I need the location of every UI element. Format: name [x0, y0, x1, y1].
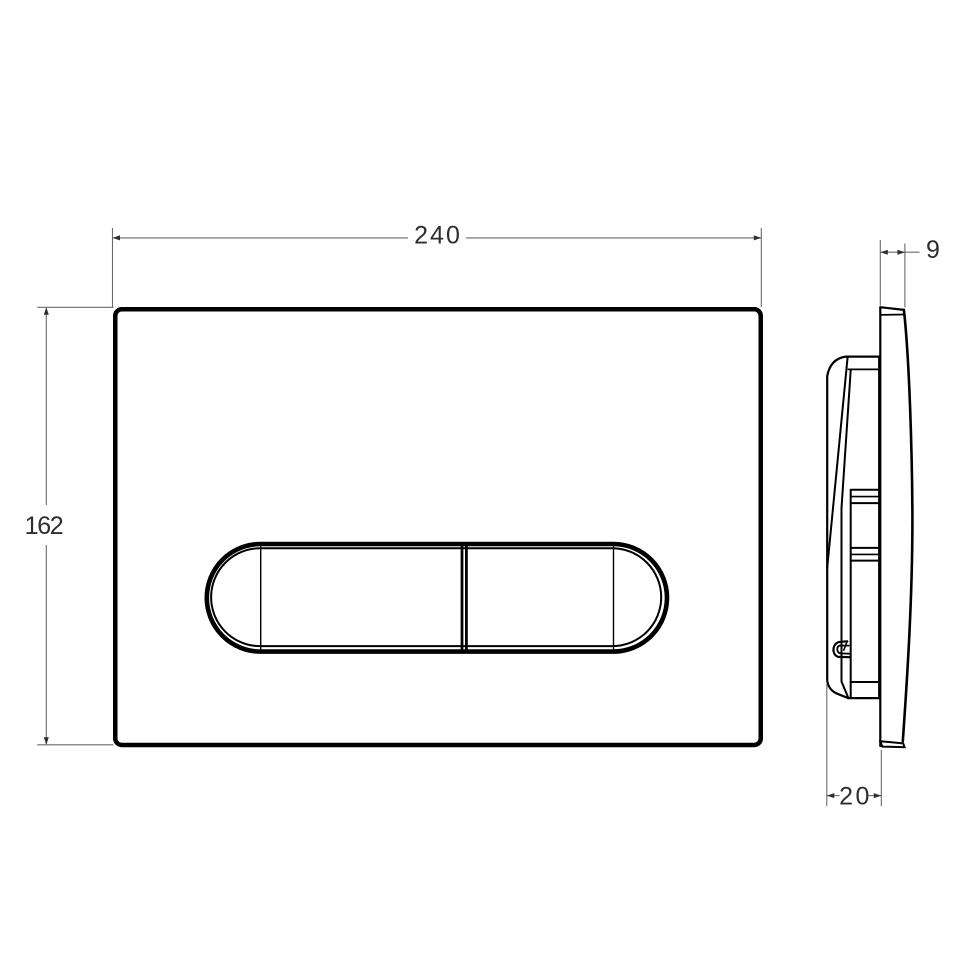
svg-text:20: 20 [839, 782, 872, 810]
svg-text:240: 240 [414, 222, 462, 250]
svg-text:9: 9 [926, 236, 940, 264]
svg-text:162: 162 [25, 512, 63, 540]
